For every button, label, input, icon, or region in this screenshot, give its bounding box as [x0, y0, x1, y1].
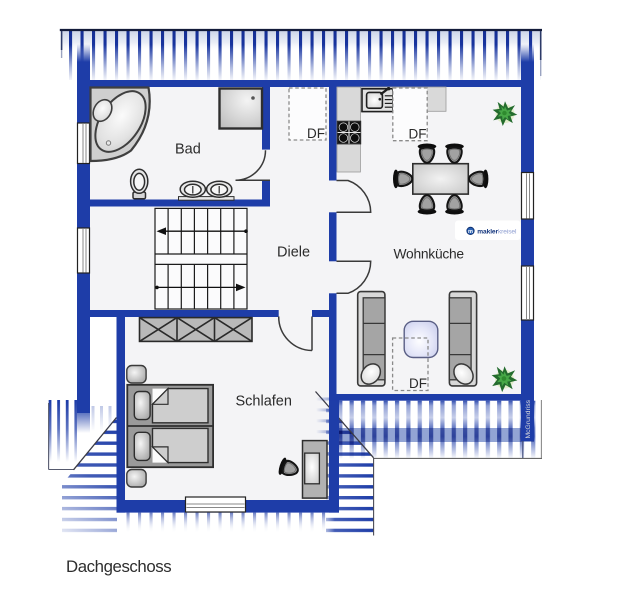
svg-text:m: m: [468, 229, 473, 235]
svg-text:Bad: Bad: [175, 142, 201, 158]
svg-text:DF: DF: [409, 127, 427, 142]
svg-text:Diele: Diele: [277, 245, 310, 261]
svg-text:Dachgeschoss: Dachgeschoss: [66, 557, 171, 576]
svg-text:DF: DF: [307, 126, 325, 141]
svg-text:maklerkreisel: maklerkreisel: [477, 228, 517, 235]
svg-text:McGrundriss: McGrundriss: [525, 399, 532, 438]
svg-text:Wohnküche: Wohnküche: [394, 246, 465, 261]
svg-text:Schlafen: Schlafen: [236, 393, 292, 409]
svg-text:DF: DF: [409, 376, 427, 391]
